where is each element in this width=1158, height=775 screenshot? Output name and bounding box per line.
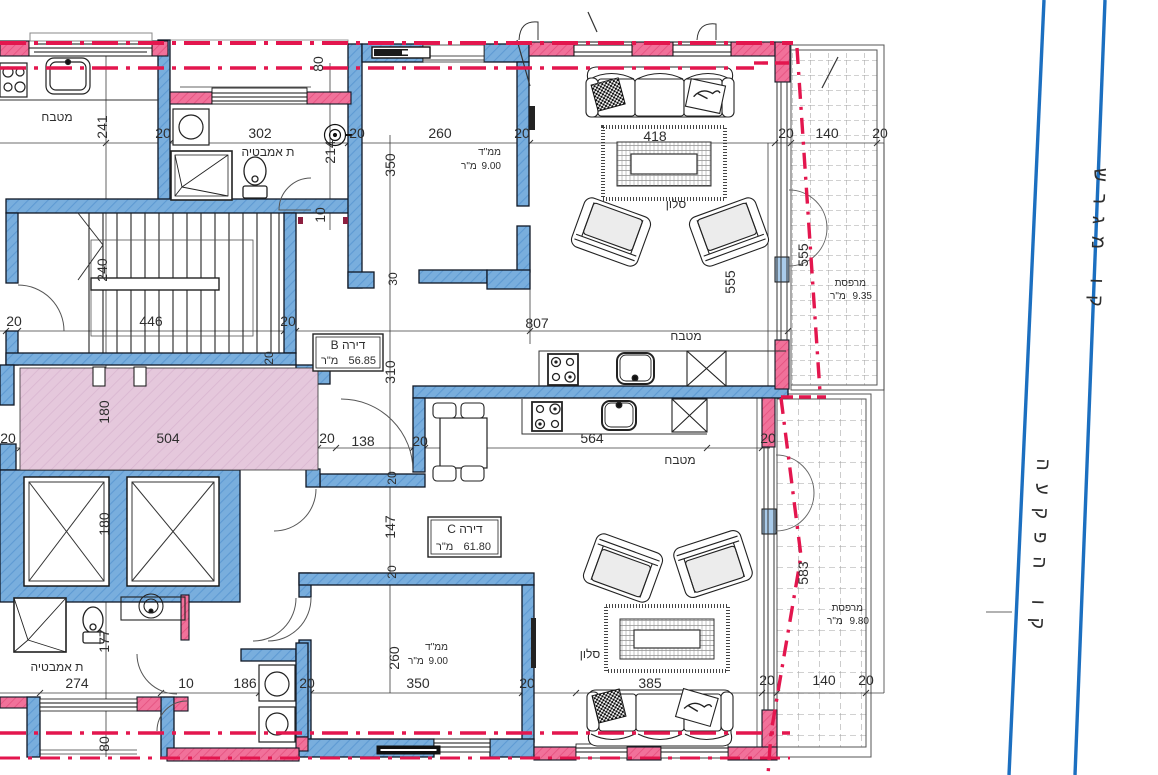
svg-text:138: 138 xyxy=(351,433,375,449)
svg-text:20: 20 xyxy=(155,125,171,141)
svg-text:מטבח: מטבח xyxy=(670,329,701,343)
svg-text:20: 20 xyxy=(6,313,22,329)
svg-text:מ"ר: מ"ר xyxy=(827,616,843,627)
svg-text:140: 140 xyxy=(815,125,839,141)
svg-text:9.00: 9.00 xyxy=(429,656,449,667)
svg-text:504: 504 xyxy=(156,430,180,446)
svg-text:מטבח: מטבח xyxy=(41,110,72,124)
svg-text:583: 583 xyxy=(795,561,811,585)
svg-text:סלון: סלון xyxy=(666,197,687,211)
svg-text:ממ"ד: ממ"ד xyxy=(478,147,501,158)
svg-text:10: 10 xyxy=(312,207,328,223)
svg-text:186: 186 xyxy=(233,675,257,691)
svg-text:מרפסת: מרפסת xyxy=(832,603,864,614)
svg-text:30: 30 xyxy=(386,272,400,286)
svg-text:56.85: 56.85 xyxy=(348,355,376,367)
svg-text:564: 564 xyxy=(580,430,604,446)
svg-text:מ"ר: מ"ר xyxy=(461,161,477,172)
svg-text:241: 241 xyxy=(94,115,110,139)
svg-text:61.80: 61.80 xyxy=(463,541,491,553)
svg-text:147: 147 xyxy=(382,515,398,539)
svg-text:20: 20 xyxy=(0,430,16,446)
svg-text:310: 310 xyxy=(382,360,398,384)
svg-text:סלון: סלון xyxy=(580,647,601,661)
svg-text:20: 20 xyxy=(519,675,535,691)
svg-text:מרפסת: מרפסת xyxy=(835,278,867,289)
svg-text:9.80: 9.80 xyxy=(850,616,870,627)
svg-text:302: 302 xyxy=(248,125,272,141)
svg-text:B דירה: B דירה xyxy=(331,338,366,352)
svg-text:20: 20 xyxy=(778,125,794,141)
svg-text:9.00: 9.00 xyxy=(482,161,502,172)
svg-text:מ"ר: מ"ר xyxy=(436,541,453,553)
svg-text:177: 177 xyxy=(96,629,112,653)
svg-text:C דירה: C דירה xyxy=(447,522,483,536)
svg-text:20: 20 xyxy=(262,351,276,365)
svg-text:מטבח: מטבח xyxy=(664,453,695,467)
svg-text:ת אמבטיה: ת אמבטיה xyxy=(242,145,295,159)
svg-text:מ"ר: מ"ר xyxy=(830,291,846,302)
svg-text:350: 350 xyxy=(382,153,398,177)
svg-text:מ"ר: מ"ר xyxy=(408,656,424,667)
svg-text:20: 20 xyxy=(514,125,530,141)
svg-text:20: 20 xyxy=(760,430,776,446)
svg-text:555: 555 xyxy=(722,270,738,294)
svg-text:214: 214 xyxy=(322,140,338,164)
svg-text:140: 140 xyxy=(812,672,836,688)
svg-text:20: 20 xyxy=(858,672,874,688)
svg-text:מ"ר: מ"ר xyxy=(321,355,338,367)
svg-text:20: 20 xyxy=(872,125,888,141)
svg-text:20: 20 xyxy=(385,471,399,485)
svg-text:385: 385 xyxy=(638,675,662,691)
svg-text:20: 20 xyxy=(759,672,775,688)
svg-text:350: 350 xyxy=(406,675,430,691)
svg-text:260: 260 xyxy=(428,125,452,141)
svg-text:80: 80 xyxy=(96,736,112,752)
svg-text:20: 20 xyxy=(412,433,428,449)
svg-text:180: 180 xyxy=(96,512,112,536)
svg-text:80: 80 xyxy=(310,56,326,72)
svg-text:260: 260 xyxy=(386,646,402,670)
svg-text:10: 10 xyxy=(178,675,194,691)
svg-text:446: 446 xyxy=(139,313,163,329)
svg-text:240: 240 xyxy=(94,258,110,282)
svg-text:20: 20 xyxy=(385,565,399,579)
svg-text:9.35: 9.35 xyxy=(853,291,873,302)
svg-text:20: 20 xyxy=(349,125,365,141)
svg-text:ממ"ד: ממ"ד xyxy=(425,642,448,653)
svg-text:807: 807 xyxy=(525,315,549,331)
svg-text:20: 20 xyxy=(299,675,315,691)
svg-text:555: 555 xyxy=(795,243,811,267)
svg-text:180: 180 xyxy=(96,400,112,424)
svg-text:20: 20 xyxy=(319,430,335,446)
svg-text:418: 418 xyxy=(643,128,667,144)
svg-text:274: 274 xyxy=(65,675,89,691)
svg-text:20: 20 xyxy=(280,313,296,329)
svg-text:ת אמבטיה: ת אמבטיה xyxy=(31,660,84,674)
